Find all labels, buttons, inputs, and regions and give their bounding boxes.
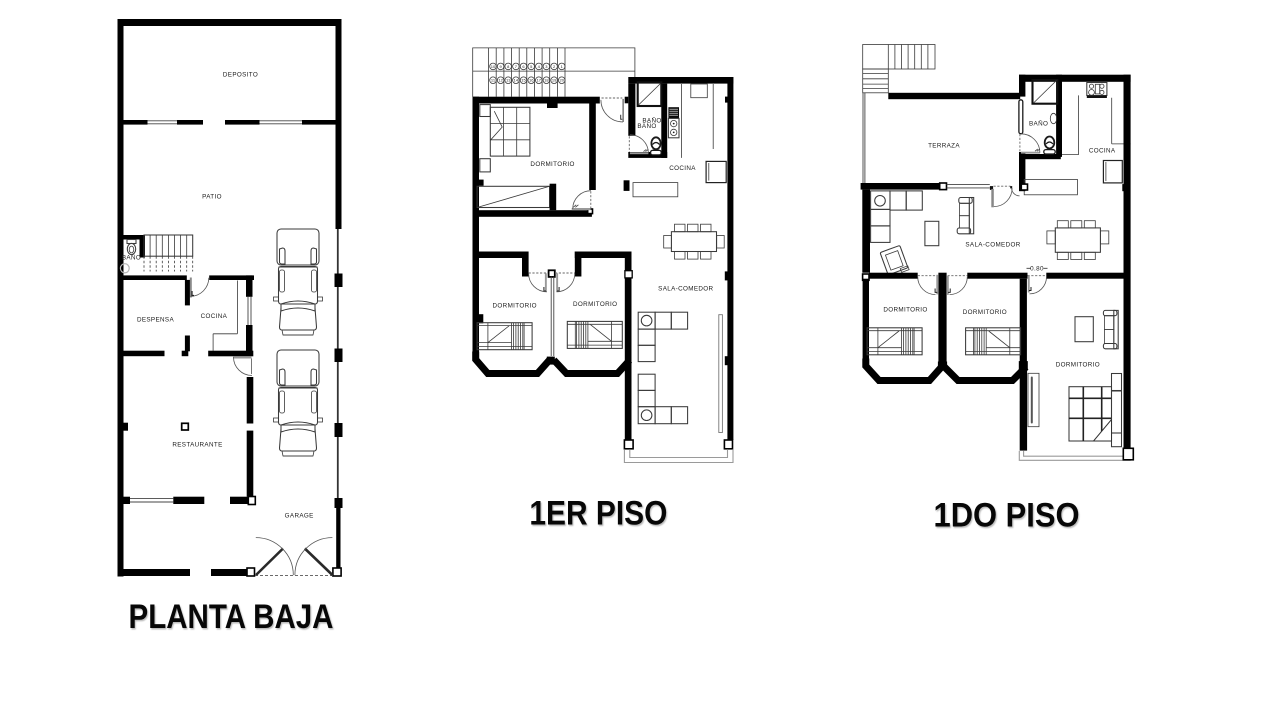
svg-text:COCINA: COCINA <box>201 313 228 320</box>
svg-text:DESPENSA: DESPENSA <box>137 317 175 324</box>
svg-text:PLANTA BAJA: PLANTA BAJA <box>129 598 334 636</box>
svg-text:RESTAURANTE: RESTAURANTE <box>172 442 222 449</box>
svg-text:DORMITORIO: DORMITORIO <box>573 301 617 308</box>
svg-text:SALA-COMEDOR: SALA-COMEDOR <box>658 286 713 293</box>
svg-text:1ER PISO: 1ER PISO <box>529 495 667 533</box>
svg-text:BAÑO: BAÑO <box>122 253 141 262</box>
svg-text:17: 17 <box>537 78 542 83</box>
svg-text:10: 10 <box>491 64 496 69</box>
svg-text:DORMITORIO: DORMITORIO <box>963 309 1007 316</box>
svg-text:BAÑO: BAÑO <box>1029 119 1048 128</box>
svg-text:1DO PISO: 1DO PISO <box>934 496 1080 534</box>
svg-text:GARAGE: GARAGE <box>285 513 314 520</box>
svg-text:DORMITORIO: DORMITORIO <box>493 303 537 310</box>
svg-text:18: 18 <box>544 78 549 83</box>
svg-text:20: 20 <box>559 78 564 83</box>
svg-text:DORMITORIO: DORMITORIO <box>883 307 927 314</box>
svg-text:16: 16 <box>529 78 534 83</box>
svg-text:0.80: 0.80 <box>1030 265 1044 272</box>
svg-text:12: 12 <box>498 78 503 83</box>
svg-text:BAÑO: BAÑO <box>637 121 656 130</box>
svg-text:COCINA: COCINA <box>1089 148 1116 155</box>
svg-text:COCINA: COCINA <box>669 165 696 172</box>
svg-text:15: 15 <box>521 78 526 83</box>
svg-text:14: 14 <box>514 78 519 83</box>
svg-text:DORMITORIO: DORMITORIO <box>1056 362 1100 369</box>
svg-text:DEPOSITO: DEPOSITO <box>223 72 258 79</box>
svg-text:DORMITORIO: DORMITORIO <box>530 161 574 168</box>
svg-text:TERRAZA: TERRAZA <box>928 142 960 149</box>
svg-text:19: 19 <box>552 78 557 83</box>
svg-text:PATIO: PATIO <box>202 194 222 201</box>
svg-text:13: 13 <box>506 78 511 83</box>
svg-text:SALA-COMEDOR: SALA-COMEDOR <box>965 242 1020 249</box>
